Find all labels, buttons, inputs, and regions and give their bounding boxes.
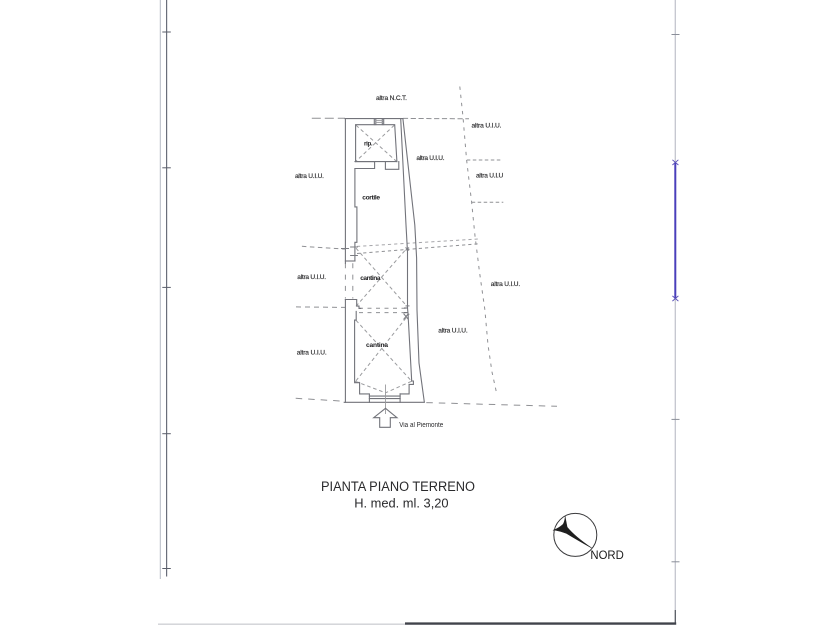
svg-text:cantina: cantina [360, 275, 381, 282]
svg-text:H. med. ml. 3,20: H. med. ml. 3,20 [354, 496, 448, 511]
svg-text:altra U.I.U.: altra U.I.U. [416, 155, 444, 162]
svg-text:altra U.I.U.: altra U.I.U. [295, 173, 324, 180]
svg-text:cortile: cortile [362, 194, 380, 201]
svg-text:altra U.I.U: altra U.I.U [476, 172, 504, 179]
svg-text:altra U.I.U.: altra U.I.U. [297, 350, 327, 357]
svg-text:rip.: rip. [364, 141, 373, 148]
svg-text:Via al Piemonte: Via al Piemonte [399, 422, 443, 429]
svg-text:NORD: NORD [590, 549, 623, 562]
svg-text:altra U.I.U.: altra U.I.U. [297, 274, 326, 281]
svg-text:cantina: cantina [366, 342, 388, 349]
svg-text:altra U.I.U.: altra U.I.U. [472, 123, 502, 130]
svg-text:altra N.C.T.: altra N.C.T. [376, 95, 407, 102]
svg-text:PIANTA PIANO TERRENO: PIANTA PIANO TERRENO [321, 479, 475, 494]
svg-text:altra U.I.U.: altra U.I.U. [491, 281, 521, 288]
svg-text:altra U.I.U.: altra U.I.U. [438, 328, 468, 335]
